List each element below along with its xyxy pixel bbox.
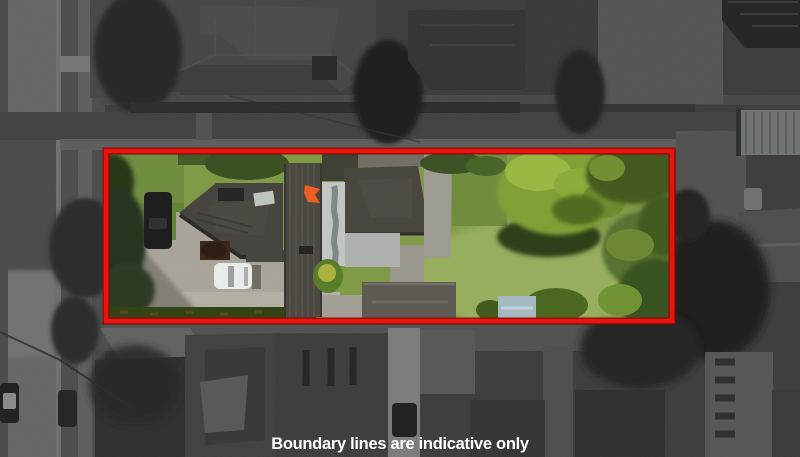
svg-text:Boundary lines are indicative: Boundary lines are indicative only bbox=[271, 435, 530, 453]
